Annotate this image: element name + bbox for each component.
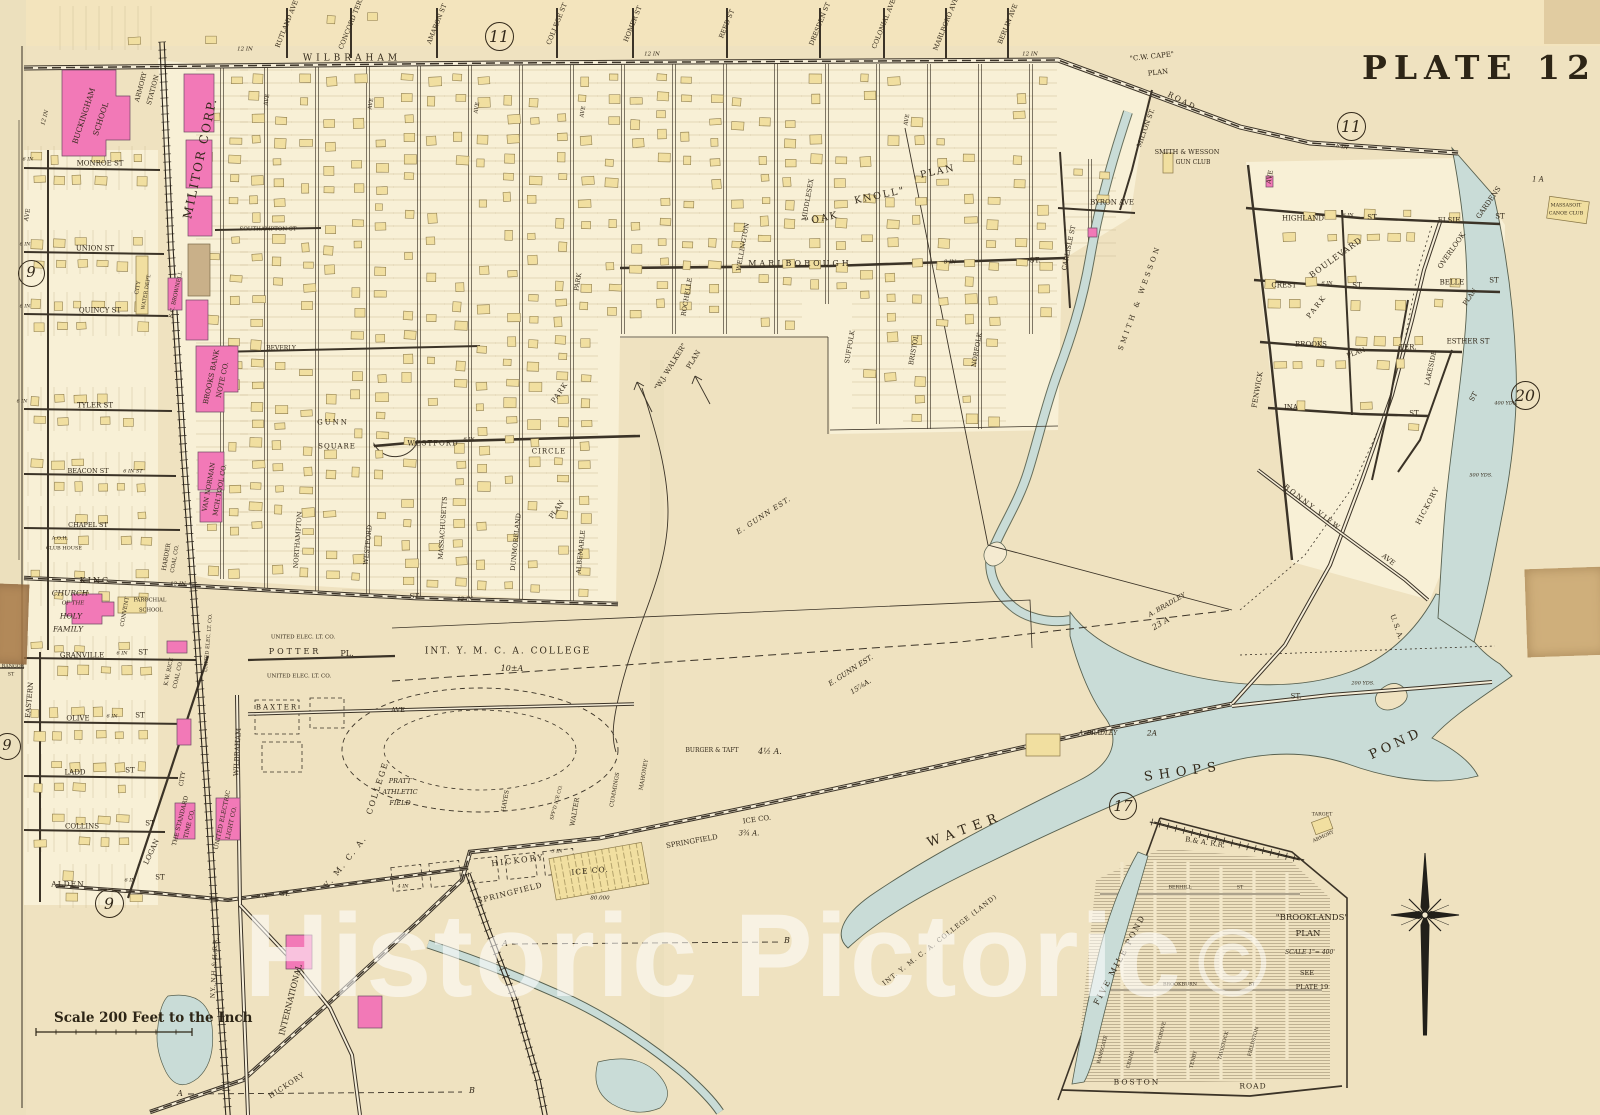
- international-building-1: [286, 935, 312, 969]
- gun-club-building: [1163, 153, 1173, 173]
- plan-pink-building: [1266, 176, 1273, 187]
- map-canvas: [0, 0, 1600, 1115]
- scale-note: Scale 200 Feet to the Inch: [54, 1010, 252, 1026]
- militor-building-5: [186, 300, 208, 340]
- united-electric-light-building: [216, 798, 240, 840]
- city-water-dept-building: [136, 256, 148, 314]
- byron-pink-building: [1088, 228, 1097, 237]
- militor-building-3: [188, 196, 212, 236]
- militor-building-4: [188, 244, 210, 296]
- van-norman-building-2: [200, 492, 222, 522]
- international-building-2: [358, 996, 382, 1028]
- van-norman-building-1: [198, 452, 224, 490]
- wetland-blob: [157, 995, 213, 1085]
- plate-title: PLATE 12: [1362, 48, 1597, 87]
- militor-building-2: [186, 140, 212, 188]
- standard-time-building: [175, 803, 195, 839]
- parochial-school-building: [118, 597, 146, 613]
- atlas-map-sheet: RUTLAND AVECONCORD TER.AMARON STCOLLEGE …: [0, 0, 1600, 1115]
- militor-building-1: [184, 74, 214, 132]
- pink-building-small: [177, 719, 191, 745]
- kw-rice-building: [167, 641, 187, 653]
- brownell-building: [168, 278, 182, 310]
- bradley-building: [1026, 734, 1060, 756]
